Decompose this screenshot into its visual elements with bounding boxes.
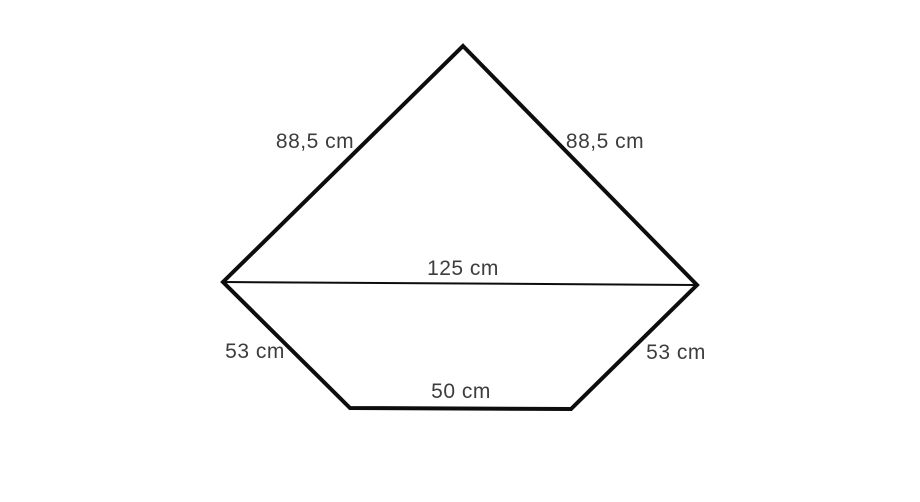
measurement-label-upper-right-side: 88,5 cm <box>566 130 644 154</box>
measurement-label-upper-left-side: 88,5 cm <box>276 130 354 154</box>
measurement-label-bottom-side: 50 cm <box>431 380 491 404</box>
geometry-diagram-canvas: 88,5 cm 88,5 cm 125 cm 53 cm 53 cm 50 cm <box>0 0 920 502</box>
pentagon-figure <box>0 0 920 502</box>
pentagon-outline <box>223 46 697 409</box>
measurement-label-lower-right-side: 53 cm <box>646 341 706 365</box>
diagonal-line <box>223 282 697 285</box>
measurement-label-lower-left-side: 53 cm <box>225 340 285 364</box>
measurement-label-diagonal: 125 cm <box>427 257 499 281</box>
